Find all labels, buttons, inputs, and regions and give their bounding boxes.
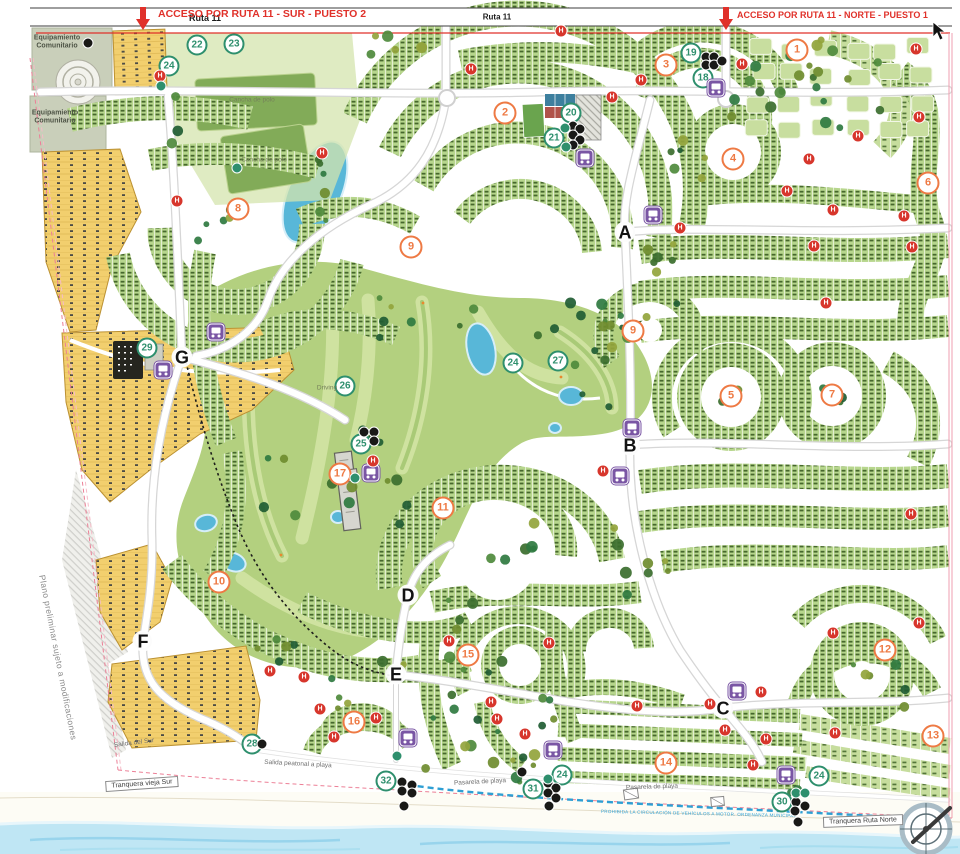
bus-stop-icon xyxy=(208,324,225,341)
hydrant-icon: H xyxy=(606,91,619,104)
hydrant-icon: H xyxy=(328,731,341,744)
poi-green-icon xyxy=(543,774,554,785)
neighborhood-marker-12: 12 xyxy=(874,639,897,662)
area-label: Driving xyxy=(317,385,337,392)
hydrant-icon: H xyxy=(443,635,456,648)
hydrant-icon: H xyxy=(465,63,478,76)
poi-green-icon xyxy=(561,142,572,153)
hydrant-icon: H xyxy=(264,665,277,678)
neighborhood-marker-8: 8 xyxy=(227,198,250,221)
bus-stop-icon xyxy=(400,730,417,747)
hydrant-icon: H xyxy=(704,698,717,711)
hydrant-icon: H xyxy=(674,222,687,235)
hydrant-icon: H xyxy=(906,241,919,254)
hydrant-icon: H xyxy=(913,617,926,630)
hydrant-icon: H xyxy=(755,686,768,699)
poi-icon xyxy=(800,801,811,812)
hydrant-icon: H xyxy=(316,147,329,160)
hydrant-icon: H xyxy=(760,733,773,746)
hydrant-icon: H xyxy=(543,637,556,650)
neighborhood-marker-16: 16 xyxy=(343,711,366,734)
hydrant-icon: H xyxy=(747,759,760,772)
amenity-marker-31: 31 xyxy=(523,779,544,800)
poi-icon xyxy=(793,817,804,828)
bus-stop-icon xyxy=(545,742,562,759)
neighborhood-marker-3: 3 xyxy=(655,54,678,77)
hydrant-icon: H xyxy=(820,297,833,310)
amenity-marker-26: 26 xyxy=(335,376,356,397)
neighborhood-marker-6: 6 xyxy=(917,172,940,195)
neighborhood-marker-14: 14 xyxy=(655,752,678,775)
hydrant-icon: H xyxy=(631,700,644,713)
hydrant-icon: H xyxy=(827,627,840,640)
path-label: Pasarela de playa xyxy=(454,777,506,787)
masterplan-map: Ruta 11 Ruta 11 ACCESO POR RUTA 11 - SUR… xyxy=(0,0,960,854)
hydrant-icon: H xyxy=(827,204,840,217)
amenity-marker-22: 22 xyxy=(187,35,208,56)
marker-layer: 1234567899101112131415161718192021222324… xyxy=(0,0,960,854)
hydrant-icon: H xyxy=(519,728,532,741)
neighborhood-marker-4: 4 xyxy=(722,148,745,171)
hydrant-icon: H xyxy=(781,185,794,198)
path-label: Salida peatonal a playa xyxy=(264,759,332,770)
poi-icon xyxy=(399,801,410,812)
neighborhood-marker-2: 2 xyxy=(494,102,517,125)
junction-label-A: A xyxy=(615,222,636,243)
amenity-marker-24: 24 xyxy=(809,766,830,787)
hydrant-icon: H xyxy=(370,712,383,725)
neighborhood-marker-9: 9 xyxy=(400,236,423,259)
amenity-marker-23: 23 xyxy=(224,34,245,55)
neighborhood-marker-11: 11 xyxy=(432,497,455,520)
hydrant-icon: H xyxy=(898,210,911,223)
hydrant-icon: H xyxy=(910,43,923,56)
hydrant-icon: H xyxy=(803,153,816,166)
amenity-marker-32: 32 xyxy=(376,771,397,792)
bus-stop-icon xyxy=(155,362,172,379)
amenity-marker-27: 27 xyxy=(548,351,569,372)
gate-label: Tranquera Ruta Norte xyxy=(823,814,903,828)
hydrant-icon: H xyxy=(555,25,568,38)
neighborhood-marker-9: 9 xyxy=(622,320,645,343)
bus-stop-icon xyxy=(612,468,629,485)
hydrant-icon: H xyxy=(852,130,865,143)
junction-label-G: G xyxy=(172,347,193,368)
neighborhood-marker-10: 10 xyxy=(208,571,231,594)
area-label: Cancha de polo xyxy=(241,157,287,164)
neighborhood-marker-15: 15 xyxy=(457,644,480,667)
neighborhood-marker-1: 1 xyxy=(786,39,809,62)
hydrant-icon: H xyxy=(913,111,926,124)
hydrant-icon: H xyxy=(719,724,732,737)
neighborhood-marker-7: 7 xyxy=(821,384,844,407)
poi-green-icon xyxy=(800,788,811,799)
bus-stop-icon xyxy=(624,420,641,437)
hydrant-icon: H xyxy=(491,713,504,726)
poi-green-icon xyxy=(350,473,361,484)
bus-stop-icon xyxy=(729,683,746,700)
hydrant-icon: H xyxy=(314,703,327,716)
neighborhood-marker-13: 13 xyxy=(922,725,945,748)
hydrant-icon: H xyxy=(298,671,311,684)
junction-label-E: E xyxy=(386,664,407,685)
amenity-marker-19: 19 xyxy=(681,43,702,64)
area-label: Cancha de polo xyxy=(229,97,275,104)
equipamiento-label: Equipamiento Comunitario xyxy=(22,110,88,127)
bus-stop-icon xyxy=(577,150,594,167)
hydrant-icon: H xyxy=(829,727,842,740)
neighborhood-marker-17: 17 xyxy=(329,463,352,486)
bus-stop-icon xyxy=(708,80,725,97)
poi-icon xyxy=(790,806,801,817)
poi-icon xyxy=(407,788,418,799)
gate-label: Tranquera vieja Sur xyxy=(105,776,179,792)
poi-icon xyxy=(517,767,528,778)
path-label: Pasarela de playa xyxy=(626,783,678,792)
junction-label-D: D xyxy=(398,585,419,606)
hydrant-icon: H xyxy=(171,195,184,208)
junction-label-F: F xyxy=(133,631,154,652)
hydrant-icon: H xyxy=(635,74,648,87)
amenity-marker-29: 29 xyxy=(137,338,158,359)
poi-icon xyxy=(717,56,728,67)
hydrant-icon: H xyxy=(485,696,498,709)
hydrant-icon: H xyxy=(808,240,821,253)
junction-label-B: B xyxy=(620,435,641,456)
path-label: Salida del Sur xyxy=(113,737,154,749)
poi-icon xyxy=(257,739,268,750)
amenity-marker-24: 24 xyxy=(503,353,524,374)
poi-green-icon xyxy=(392,751,403,762)
poi-green-icon xyxy=(560,123,571,134)
poi-green-icon xyxy=(232,163,243,174)
hydrant-icon: H xyxy=(905,508,918,521)
hydrant-icon: H xyxy=(597,465,610,478)
poi-icon xyxy=(544,801,555,812)
poi-green-icon xyxy=(156,81,167,92)
equipamiento-label: Equipamiento Comunitario xyxy=(24,35,90,52)
poi-icon xyxy=(369,436,380,447)
bus-stop-icon xyxy=(645,207,662,224)
bus-stop-icon xyxy=(778,767,795,784)
hydrant-icon: H xyxy=(736,58,749,71)
neighborhood-marker-5: 5 xyxy=(720,385,743,408)
hydrant-icon: H xyxy=(367,455,380,468)
